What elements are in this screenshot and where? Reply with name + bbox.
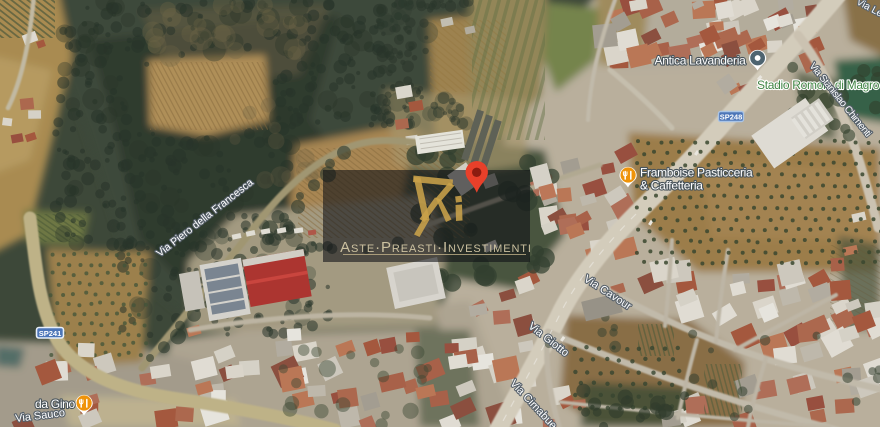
svg-text:Aste·Preasti·Investimenti: Aste·Preasti·Investimenti	[340, 239, 532, 256]
svg-text:SP241: SP241	[39, 329, 62, 338]
svg-text:& Caffetteria: & Caffetteria	[640, 179, 703, 193]
svg-text:Framboise Pasticceria: Framboise Pasticceria	[640, 166, 753, 180]
svg-text:SP248: SP248	[720, 113, 743, 122]
svg-text:Antica Lavanderia: Antica Lavanderia	[655, 54, 747, 68]
